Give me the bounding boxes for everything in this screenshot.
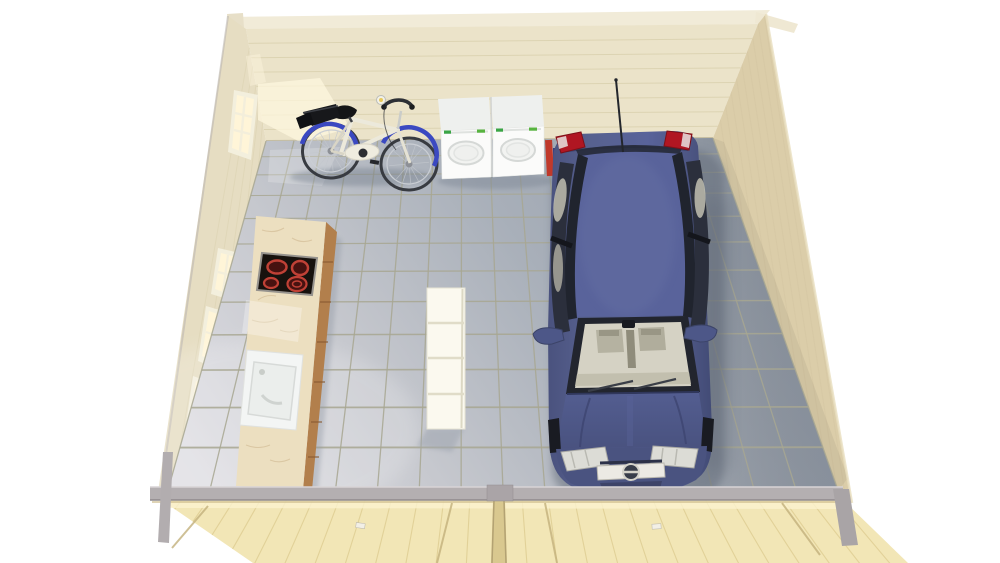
burner-2 (292, 261, 308, 275)
headrest-right (641, 329, 661, 335)
burner-3 (264, 278, 278, 288)
burner-4 (288, 277, 307, 291)
washer-right-green-label (496, 129, 503, 132)
roof-highlight (579, 155, 675, 315)
door-handle-left (356, 522, 366, 528)
interior-glimpse-right-1 (695, 178, 706, 218)
render-canvas (0, 0, 1000, 563)
washer-left-top (438, 97, 491, 131)
washer-right-top (491, 95, 544, 129)
crank (359, 149, 368, 158)
washer-right-green-label-2 (529, 128, 537, 131)
interior-glimpse-left-2 (553, 244, 563, 292)
door-handle-right (652, 524, 661, 530)
mirror-right (684, 325, 717, 342)
headlamp-lens (379, 98, 383, 102)
washer-left-green-label (444, 131, 451, 134)
washer-left-green-label-2 (477, 130, 485, 133)
faucet (259, 369, 265, 375)
washer-right-lid-inner (507, 143, 530, 157)
car (533, 78, 717, 494)
scene-svg (0, 0, 1000, 563)
sink-basin (248, 362, 296, 420)
mirror-left (533, 328, 564, 345)
ceramic-hob (257, 253, 317, 295)
burner-1 (268, 261, 287, 274)
antenna-tip (614, 78, 617, 81)
grille-slot (600, 461, 662, 463)
rearview-mirror (622, 320, 635, 328)
washer-gap (491, 97, 492, 177)
grip-right (409, 104, 415, 110)
front-wheel-left (548, 418, 561, 453)
headrest-left (599, 330, 619, 336)
washer-left-lid-inner (454, 146, 478, 161)
beam-joint-block (487, 485, 513, 501)
shelf-unit (427, 288, 465, 429)
